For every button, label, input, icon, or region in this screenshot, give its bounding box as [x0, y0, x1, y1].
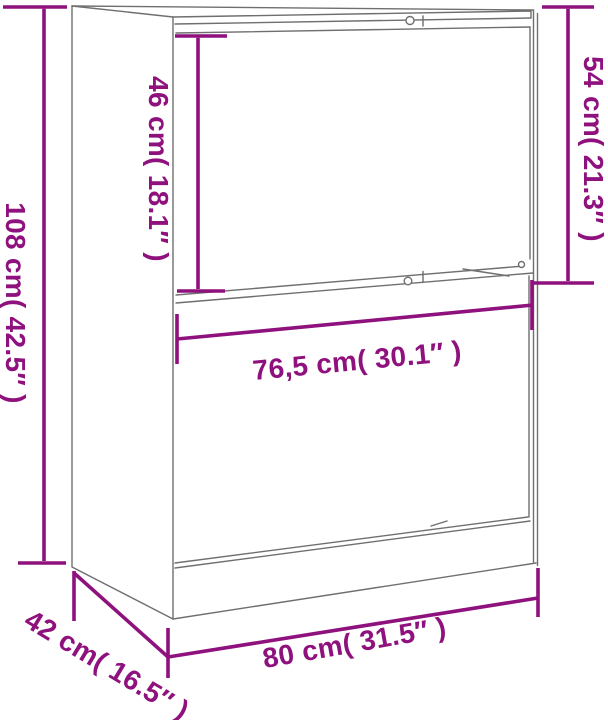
middle-knob-circle-icon [404, 277, 412, 285]
top-slab-bottom-edge [175, 18, 531, 24]
plinth-bottom-edge [173, 563, 536, 619]
label-upper-section-height: 54 cm( 21.3″ ) [578, 56, 608, 242]
side-panel-top-edge [72, 6, 173, 17]
label-total-height: 108 cm( 42.5″ ) [0, 202, 31, 404]
top-back-edge [72, 6, 533, 10]
dimension-labels: 108 cm( 42.5″ ) 46 cm( 18.1″ ) 54 cm( 21… [0, 56, 608, 720]
label-total-width: 80 cm( 31.5″ ) [260, 611, 448, 674]
upper-door-top-edge [176, 27, 530, 33]
label-upper-door-height: 46 cm( 18.1″ ) [143, 76, 174, 262]
lower-door-top-edge [176, 273, 533, 303]
bottom-notch [431, 521, 447, 526]
top-knob-circle-icon [406, 17, 414, 25]
bottom-rail-edge [175, 521, 530, 568]
right-peg-circle-icon [519, 262, 525, 268]
label-drawer-front-width: 76,5 cm( 30.1″ ) [251, 335, 463, 386]
dimension-diagram: 108 cm( 42.5″ ) 46 cm( 18.1″ ) 54 cm( 21… [0, 0, 608, 720]
dimension-line-total-width [168, 568, 538, 678]
top-slab-front-edge [173, 11, 531, 18]
dimension-line-upper-door-height [175, 36, 227, 291]
lower-door-bottom-edge [175, 517, 528, 563]
shoe-cabinet-dimension-drawing: 108 cm( 42.5″ ) 46 cm( 18.1″ ) 54 cm( 21… [0, 0, 608, 720]
